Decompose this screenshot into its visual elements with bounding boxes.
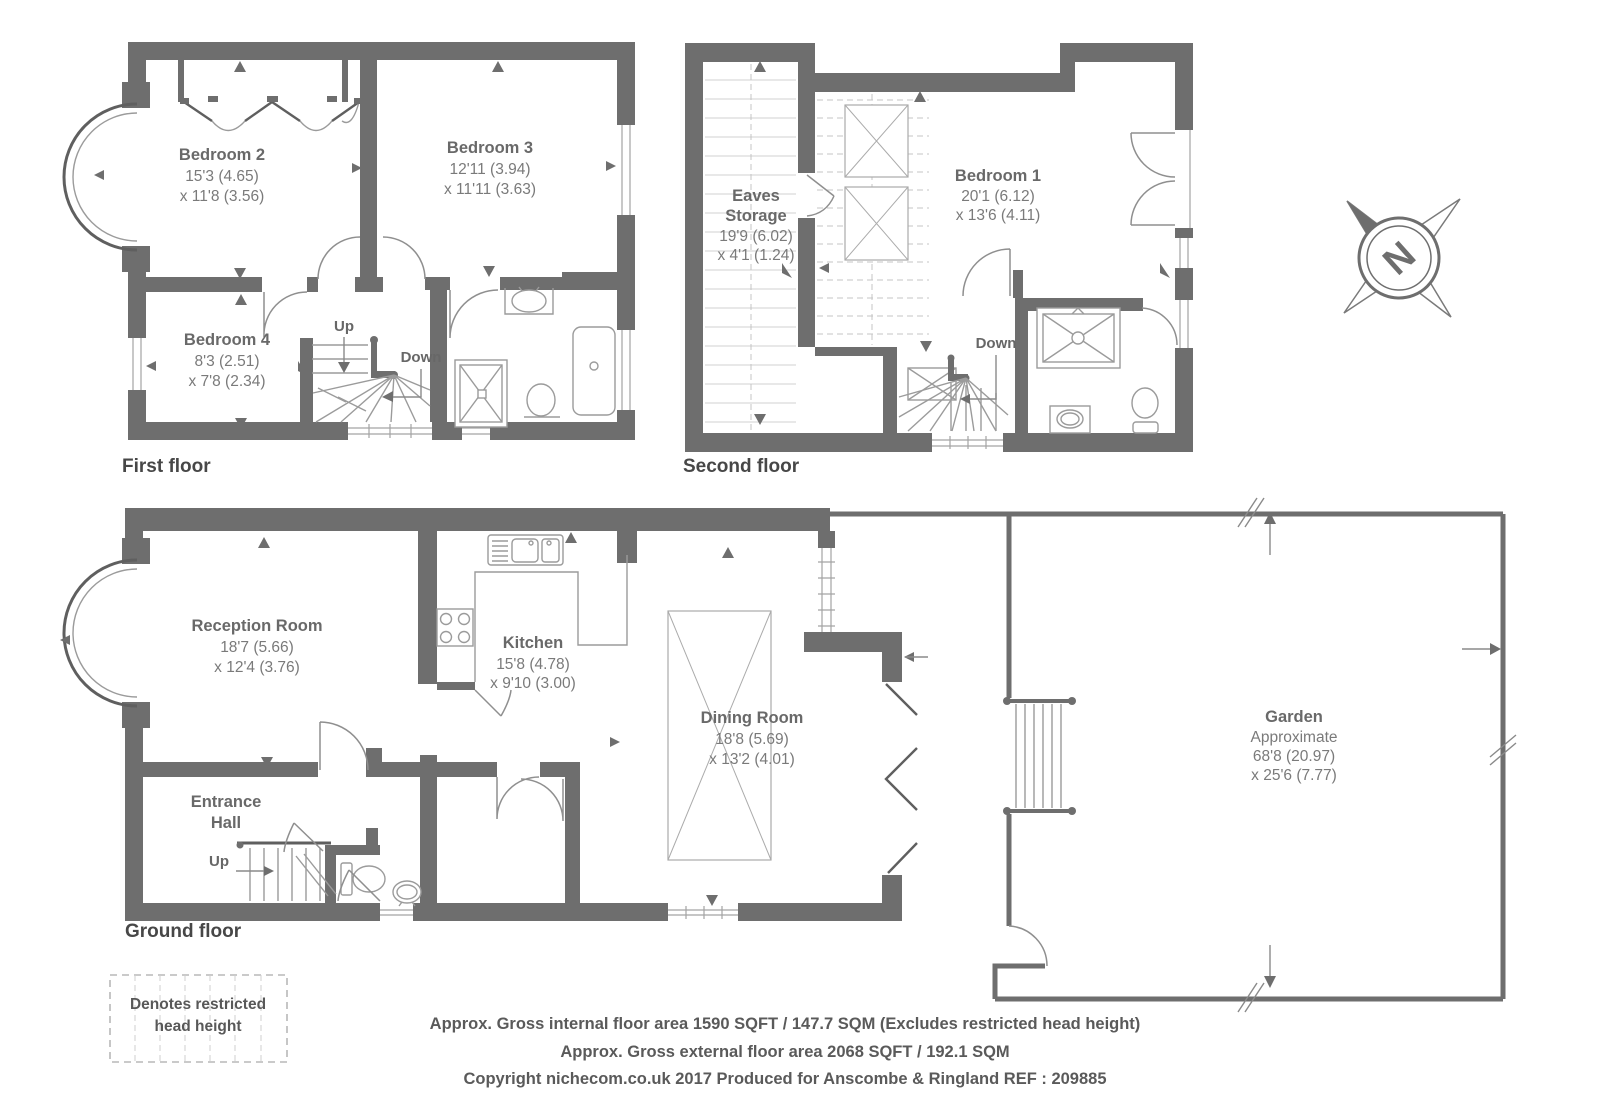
bedroom1-dim2: x 13'6 (4.11) <box>956 207 1041 224</box>
second-floor-plan: Down Eaves Storage 19'9 (6.02) x 4'1 (1.… <box>683 43 1193 477</box>
floorplan-canvas: Up Down Bedroom 2 15'3 (4.65) x 11'8 (3.… <box>0 0 1600 1117</box>
bedroom3-dim1: 12'11 (3.94) <box>449 161 530 178</box>
bedroom3-dim2: x 11'11 (3.63) <box>444 181 536 198</box>
garden-dim1: 68'8 (20.97) <box>1253 748 1335 765</box>
first-up-label: Up <box>334 318 354 335</box>
bedroom2-name: Bedroom 2 <box>179 146 265 164</box>
reception-dim2: x 12'4 (3.76) <box>214 659 300 676</box>
ground-up-label: Up <box>209 853 229 870</box>
floorplan-page: Up Down Bedroom 2 15'3 (4.65) x 11'8 (3.… <box>0 0 1600 1117</box>
eaves-name2: Storage <box>725 207 786 225</box>
garden-boundary <box>830 498 1516 1012</box>
footer-external-area: Approx. Gross external floor area 2068 S… <box>560 1043 1009 1061</box>
bedroom2-dim1: 15'3 (4.65) <box>185 168 259 185</box>
footer-copyright: Copyright nichecom.co.uk 2017 Produced f… <box>463 1070 1106 1088</box>
kitchen-dim1: 15'8 (4.78) <box>496 656 570 673</box>
eaves-dim1: 19'9 (6.02) <box>719 228 793 245</box>
first-down-label: Down <box>401 349 442 366</box>
first-floor-plan: Up Down Bedroom 2 15'3 (4.65) x 11'8 (3.… <box>64 42 635 477</box>
bedroom1-dim1: 20'1 (6.12) <box>961 188 1035 205</box>
bedroom3-name: Bedroom 3 <box>447 139 533 157</box>
second-floor-title: Second floor <box>683 456 800 477</box>
kitchen-dim2: x 9'10 (3.00) <box>490 675 576 692</box>
footer-text: Approx. Gross internal floor area 1590 S… <box>430 1015 1141 1088</box>
reception-dim1: 18'7 (5.66) <box>220 639 294 656</box>
restricted-head-height-legend: Denotes restricted head height <box>110 975 287 1062</box>
entrance-name1: Entrance <box>191 793 262 811</box>
garden-name: Garden <box>1265 708 1323 726</box>
wardrobe-icon <box>180 96 363 131</box>
skylight-icons <box>845 105 908 260</box>
legend-line2: head height <box>155 1018 242 1035</box>
bifold-doors-icon <box>886 684 917 873</box>
ground-floor-plan: Up Reception Room 18'7 (5.66) x 12'4 (3.… <box>60 498 1516 1012</box>
bedroom4-dim2: x 7'8 (2.34) <box>188 373 265 390</box>
garden-dim2: x 25'6 (7.77) <box>1251 767 1337 784</box>
bedroom4-dim1: 8'3 (2.51) <box>195 353 260 370</box>
kitchen-name: Kitchen <box>503 634 564 652</box>
bedroom1-name: Bedroom 1 <box>955 167 1041 185</box>
wc-icons <box>341 863 421 906</box>
ground-bay-window-icon <box>64 560 137 706</box>
compass-icon: N <box>1344 199 1460 317</box>
eaves-dim2: x 4'1 (1.24) <box>717 247 794 264</box>
first-floor-title: First floor <box>122 456 211 477</box>
first-floor-direction-icons <box>94 61 616 429</box>
first-floor-room-labels: Bedroom 2 15'3 (4.65) x 11'8 (3.56) Bedr… <box>179 139 536 390</box>
bedroom4-name: Bedroom 4 <box>184 331 271 349</box>
reception-name: Reception Room <box>191 617 322 635</box>
eaves-name1: Eaves <box>732 187 780 205</box>
footer-internal-area: Approx. Gross internal floor area 1590 S… <box>430 1015 1141 1033</box>
dining-dim2: x 13'2 (4.01) <box>709 751 795 768</box>
second-floor-stairs-icon <box>899 355 1008 432</box>
entrance-name2: Hall <box>211 814 241 832</box>
second-floor-bathroom-icons <box>1037 308 1158 433</box>
dining-dim1: 18'8 (5.69) <box>715 731 789 748</box>
legend-line1: Denotes restricted <box>130 996 266 1013</box>
dining-name: Dining Room <box>701 709 804 727</box>
bedroom2-dim2: x 11'8 (3.56) <box>180 188 265 205</box>
first-floor-bathroom-icons <box>455 287 615 427</box>
ground-floor-title: Ground floor <box>125 921 242 942</box>
garden-sub: Approximate <box>1250 729 1337 746</box>
second-down-label: Down <box>976 335 1017 352</box>
